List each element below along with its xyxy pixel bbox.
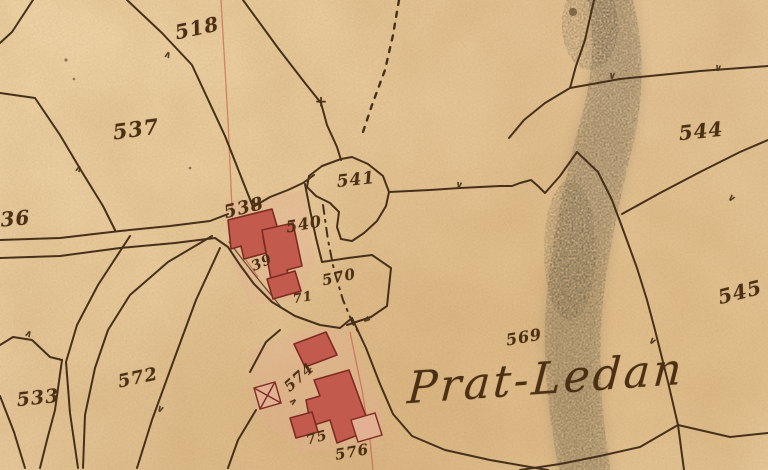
boundary-tick-icon: ∨ [607, 71, 616, 82]
smudge-mid-blotch [544, 180, 596, 320]
parcel-number: 536 [0, 205, 31, 233]
boundary-tick-icon: ∨ [713, 63, 723, 74]
parcel-number: 541 [336, 168, 376, 192]
junction-cross-icon: + [315, 95, 328, 110]
map-drawing [0, 0, 768, 470]
parcel-number: 544 [677, 117, 724, 146]
cadastral-map: 5185375365385405413957071544545569572533… [0, 0, 768, 470]
boundary-tick-icon: ∨ [454, 180, 464, 191]
parcel-number: 533 [16, 385, 61, 411]
